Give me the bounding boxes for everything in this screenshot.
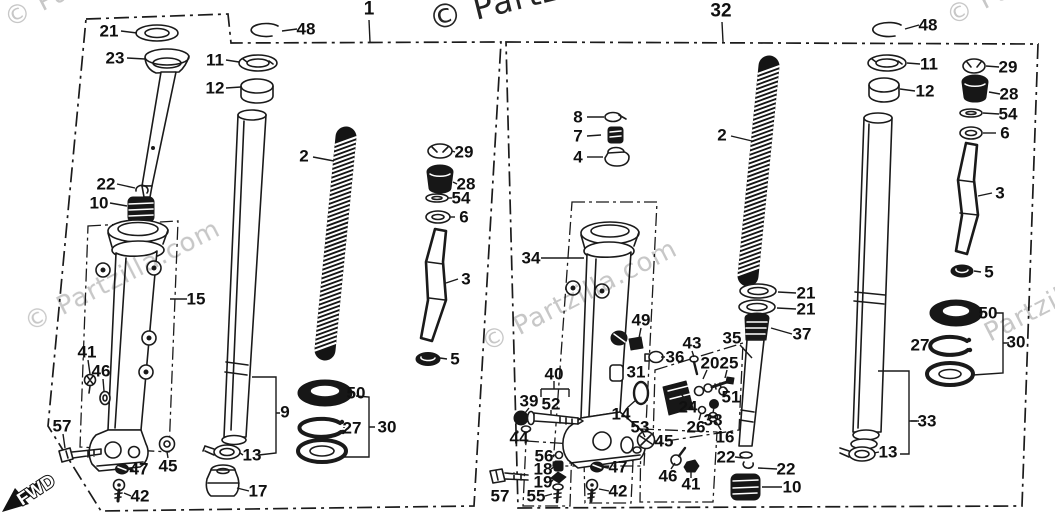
part-callout-27: 27 bbox=[343, 419, 362, 438]
part-callout-46: 46 bbox=[659, 467, 678, 486]
part-callout-15: 15 bbox=[187, 290, 206, 309]
leader-line-46 bbox=[103, 379, 104, 391]
ring-6 bbox=[960, 127, 982, 139]
part-callout-54: 54 bbox=[452, 189, 471, 208]
leader-line-5 bbox=[440, 358, 447, 359]
part-callout-45: 45 bbox=[159, 457, 178, 476]
rebound-valve-28 bbox=[427, 165, 453, 193]
fork-spring-2 bbox=[314, 137, 356, 351]
damper-rod-3 bbox=[956, 143, 978, 254]
circlip-48 bbox=[251, 24, 278, 37]
part-callout-42: 42 bbox=[609, 482, 628, 501]
part-callout-16: 16 bbox=[716, 428, 735, 447]
part-callout-34: 34 bbox=[522, 249, 541, 268]
leader-line-7 bbox=[587, 135, 601, 136]
rebound-spring-10 bbox=[128, 197, 154, 222]
part-callout-13: 13 bbox=[879, 443, 898, 462]
part-callout-24: 24 bbox=[679, 398, 698, 417]
fwd-arrow: FWD bbox=[2, 470, 59, 512]
part-callout-9: 9 bbox=[280, 403, 289, 422]
part-callout-55: 55 bbox=[527, 487, 546, 506]
leader-line-28 bbox=[989, 92, 1000, 94]
part-callout-44: 44 bbox=[510, 429, 529, 448]
part-callout-30: 30 bbox=[378, 418, 397, 437]
part-callout-8: 8 bbox=[573, 108, 582, 127]
part-callout-5: 5 bbox=[984, 263, 993, 282]
part-callout-35: 35 bbox=[723, 329, 742, 348]
back-up-ring-21 bbox=[136, 25, 178, 41]
part-callout-21: 21 bbox=[100, 22, 119, 41]
leader-line-37 bbox=[771, 328, 792, 334]
part-callout-57: 57 bbox=[491, 487, 510, 506]
part-callout-22: 22 bbox=[777, 460, 796, 479]
part-callout-3: 3 bbox=[995, 184, 1004, 203]
part-callout-12: 12 bbox=[916, 82, 935, 101]
washer-54 bbox=[960, 109, 982, 117]
piston-ring-29 bbox=[963, 59, 985, 73]
leader-line-2 bbox=[313, 157, 334, 161]
leader-line-10 bbox=[110, 203, 127, 206]
dust-seal-30 bbox=[927, 363, 973, 385]
part-callout-29: 29 bbox=[999, 58, 1018, 77]
part-callout-11: 11 bbox=[920, 55, 938, 74]
rings-21 bbox=[739, 284, 776, 314]
leader-line-32 bbox=[722, 22, 723, 42]
part-callout-39: 39 bbox=[520, 392, 539, 411]
oil-seal-50 bbox=[930, 300, 982, 326]
part-callout-53: 53 bbox=[631, 418, 650, 437]
part-callout-1: 1 bbox=[364, 0, 375, 20]
leader-line-11 bbox=[226, 60, 239, 62]
part-callout-21: 21 bbox=[797, 300, 816, 319]
drain-bolt-42 bbox=[587, 480, 598, 502]
parts-diagram: 1482123111222928546352210154146574547429… bbox=[0, 0, 1055, 523]
leader-line-55 bbox=[545, 494, 552, 496]
part-callout-41: 41 bbox=[682, 475, 701, 494]
part-callout-47: 47 bbox=[130, 460, 149, 479]
oil-seal-50 bbox=[298, 380, 352, 406]
rebound-valve-28 bbox=[962, 75, 988, 102]
leader-line-2 bbox=[731, 136, 752, 141]
part-callout-50: 50 bbox=[347, 384, 366, 403]
part-callout-40: 40 bbox=[545, 365, 564, 384]
leader-line-23 bbox=[127, 58, 145, 59]
part-callout-43: 43 bbox=[683, 334, 702, 353]
dust-seal-30 bbox=[298, 440, 346, 462]
part-callout-27: 27 bbox=[911, 336, 930, 355]
part-callout-26: 26 bbox=[687, 418, 706, 437]
valve-4 bbox=[605, 148, 629, 167]
part-callout-45: 45 bbox=[655, 432, 674, 451]
washer-46 bbox=[100, 392, 110, 405]
part-callout-57: 57 bbox=[53, 417, 72, 436]
part-callout-54: 54 bbox=[999, 105, 1018, 124]
leader-line-3 bbox=[978, 193, 992, 196]
part-callout-49: 49 bbox=[632, 311, 651, 330]
part-callout-31: 31 bbox=[627, 363, 646, 382]
circlip-48 bbox=[873, 23, 901, 37]
leader-line-41 bbox=[88, 360, 90, 374]
part-callout-32: 32 bbox=[710, 1, 731, 22]
leader-line-21 bbox=[121, 31, 137, 33]
leader-line-57 bbox=[63, 434, 65, 448]
fwd-label: FWD bbox=[13, 470, 58, 509]
part-callout-25: 25 bbox=[720, 354, 739, 373]
fork-tube-9 bbox=[222, 110, 266, 445]
leader-line-48 bbox=[905, 25, 919, 29]
part-callout-20: 20 bbox=[701, 354, 720, 373]
leader-line-12 bbox=[226, 87, 241, 88]
axle-bolt-57 bbox=[490, 469, 528, 483]
leader-line-22 bbox=[735, 457, 743, 458]
part-callout-11: 11 bbox=[206, 51, 224, 70]
part-callout-33: 33 bbox=[918, 412, 937, 431]
leader-line-22 bbox=[758, 468, 777, 469]
seat-5 bbox=[416, 353, 440, 366]
fork-boot-17 bbox=[206, 465, 239, 496]
part-callout-42: 42 bbox=[131, 487, 150, 506]
damper-rod-3 bbox=[421, 229, 446, 341]
part-callout-4: 4 bbox=[573, 148, 583, 167]
clamp-ring-13 bbox=[840, 447, 875, 461]
drain-bolt-42 bbox=[114, 480, 125, 502]
part-callout-6: 6 bbox=[1000, 124, 1009, 143]
fork-tube-33 bbox=[851, 113, 892, 449]
seat-5 bbox=[951, 265, 973, 277]
part-callout-7: 7 bbox=[573, 127, 582, 146]
washer-54 bbox=[426, 194, 448, 202]
leader-line-5 bbox=[974, 271, 981, 272]
part-callout-14: 14 bbox=[612, 405, 631, 424]
watermark-text: © Partzilla.com bbox=[425, 0, 696, 39]
part-callout-10: 10 bbox=[90, 194, 109, 213]
stopper-ring-27 bbox=[930, 337, 972, 355]
bracket-9 bbox=[252, 377, 280, 455]
part-callout-2: 2 bbox=[299, 147, 308, 166]
leader-line-42 bbox=[599, 489, 609, 491]
fork-spring-2 bbox=[737, 66, 779, 276]
part-callout-10: 10 bbox=[783, 478, 802, 497]
part-callout-51: 51 bbox=[722, 388, 741, 407]
leader-line-3 bbox=[446, 279, 458, 283]
leader-line-21 bbox=[777, 308, 796, 309]
part-callout-48: 48 bbox=[919, 16, 938, 35]
ring-6 bbox=[426, 211, 450, 223]
leader-line-22 bbox=[117, 184, 135, 188]
leader-line-54 bbox=[983, 113, 999, 114]
leader-line-49 bbox=[639, 328, 641, 338]
part-callout-12: 12 bbox=[206, 79, 225, 98]
leader-line-1 bbox=[369, 20, 370, 42]
part-callout-48: 48 bbox=[297, 20, 316, 39]
part-callout-22: 22 bbox=[717, 448, 736, 467]
leader-line-29 bbox=[986, 66, 999, 67]
part-callout-2: 2 bbox=[717, 126, 726, 145]
part-callout-22: 22 bbox=[97, 175, 116, 194]
part-callout-23: 23 bbox=[106, 49, 125, 68]
oil-seal-stopper-11 bbox=[868, 55, 906, 71]
leader-line-12 bbox=[900, 89, 915, 91]
watermark-text: © Partzilla.com bbox=[942, 0, 1055, 32]
piston-ring-29 bbox=[428, 144, 452, 158]
rebound-spring-10 bbox=[731, 474, 760, 500]
part-callout-5: 5 bbox=[450, 350, 459, 369]
part-callout-47: 47 bbox=[609, 458, 628, 477]
bushing-12 bbox=[869, 78, 899, 102]
part-callout-52: 52 bbox=[542, 395, 561, 414]
damper-case-37-rod bbox=[739, 313, 769, 468]
bushing-12 bbox=[241, 79, 273, 103]
part-callout-41: 41 bbox=[78, 343, 97, 362]
part-callout-28: 28 bbox=[1000, 85, 1019, 104]
leader-line-11 bbox=[907, 63, 920, 64]
part-callout-17: 17 bbox=[249, 482, 268, 501]
stopper-ring-27 bbox=[299, 419, 345, 437]
clamp-ring-13 bbox=[203, 445, 240, 459]
washer-45 bbox=[160, 437, 175, 452]
leader-line-48 bbox=[282, 29, 297, 31]
part-callout-37: 37 bbox=[793, 325, 812, 344]
part-callout-3: 3 bbox=[461, 270, 470, 289]
fork-bolt-23-and-rod bbox=[142, 49, 189, 197]
watermark-text: © Partzilla.com bbox=[477, 234, 683, 359]
part-callout-46: 46 bbox=[92, 362, 111, 381]
watermark-text: Partzilla.com bbox=[980, 240, 1055, 348]
part-callout-6: 6 bbox=[459, 208, 468, 227]
part-callout-29: 29 bbox=[455, 143, 474, 162]
piston-8 bbox=[605, 113, 626, 122]
oil-seal-stopper-11 bbox=[239, 55, 277, 71]
leader-line-21 bbox=[778, 292, 796, 293]
part-callout-13: 13 bbox=[243, 446, 262, 465]
collar-7 bbox=[608, 127, 623, 143]
